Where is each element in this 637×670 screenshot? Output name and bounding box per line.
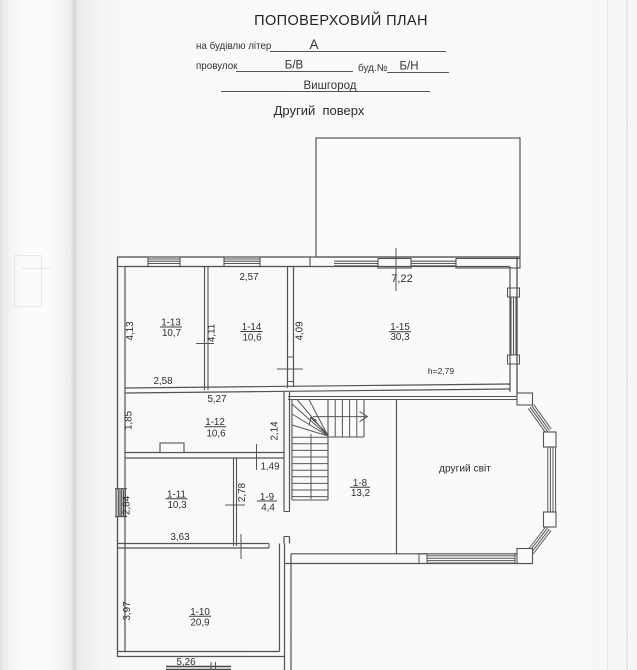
svg-text:20,9: 20,9: [190, 618, 209, 629]
svg-text:4,13: 4,13: [125, 321, 136, 341]
svg-text:4,11: 4,11: [207, 324, 218, 342]
svg-text:30,3: 30,3: [390, 332, 410, 343]
svg-text:А: А: [309, 37, 318, 52]
svg-text:3,63: 3,63: [170, 532, 190, 543]
svg-text:13,2: 13,2: [351, 488, 370, 499]
svg-text:3,97: 3,97: [122, 601, 133, 620]
svg-text:другий світ: другий світ: [439, 464, 491, 475]
svg-text:Б/Н: Б/Н: [399, 61, 418, 73]
svg-text:4,09: 4,09: [295, 321, 306, 340]
svg-text:10,6: 10,6: [242, 333, 262, 344]
svg-text:буд.№: буд.№: [358, 62, 388, 74]
svg-text:2,57: 2,57: [239, 272, 258, 283]
svg-text:1,85: 1,85: [124, 410, 135, 430]
svg-text:провулок: провулок: [196, 61, 238, 72]
svg-text:2,58: 2,58: [153, 376, 173, 387]
svg-text:2,84: 2,84: [122, 495, 133, 515]
svg-text:h=2,79: h=2,79: [428, 366, 455, 376]
svg-text:2,14: 2,14: [270, 421, 281, 441]
svg-text:Вишгород: Вишгород: [304, 80, 357, 92]
svg-text:5,27: 5,27: [207, 394, 226, 405]
svg-text:10,7: 10,7: [162, 328, 181, 339]
svg-text:7,22: 7,22: [391, 273, 412, 285]
svg-text:ПОПОВЕРХОВИЙ ПЛАН: ПОПОВЕРХОВИЙ ПЛАН: [254, 11, 428, 29]
svg-text:4,4: 4,4: [261, 503, 275, 514]
svg-text:10,3: 10,3: [167, 500, 187, 511]
svg-text:1,49: 1,49: [260, 462, 279, 473]
svg-text:Другий поверх: Другий поверх: [274, 103, 365, 118]
svg-text:2,78: 2,78: [237, 482, 248, 502]
svg-text:10,6: 10,6: [206, 429, 226, 440]
svg-text:Б/В: Б/В: [285, 60, 304, 72]
svg-text:на будівлю літер: на будівлю літер: [196, 41, 272, 52]
